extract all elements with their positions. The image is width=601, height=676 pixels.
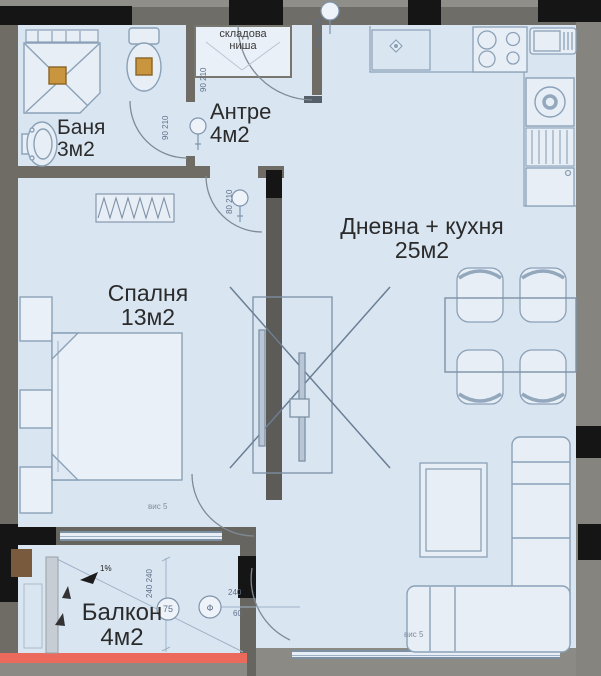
- column: [408, 0, 441, 25]
- room-name: Балкон: [82, 599, 162, 626]
- column: [18, 527, 56, 545]
- window-living: [292, 650, 560, 659]
- window-bedroom: [60, 531, 222, 541]
- balcony-railing: [0, 653, 247, 663]
- dim-door-entry: 100 210: [316, 19, 324, 48]
- entry-door-leaf: [304, 96, 322, 103]
- column-brown: [11, 549, 32, 577]
- column: [576, 426, 601, 458]
- room-area: 4м2: [70, 625, 174, 650]
- wall-bathroom-bottom: [18, 166, 210, 178]
- note-sofa: вис 5: [404, 631, 423, 639]
- room-area: 25м2: [312, 238, 532, 262]
- dim-60: 60: [233, 610, 242, 618]
- label-bathroom: Баня 3м2: [57, 117, 105, 161]
- column: [0, 6, 132, 25]
- floor-plan: 75 Ф Баня 3м2 Антре 4м2 Дневна + кухня 2…: [0, 0, 601, 676]
- room-area: 3м2: [57, 139, 105, 161]
- room-name: Дневна + кухня: [340, 213, 503, 239]
- column: [538, 0, 601, 22]
- room-area: 4м2: [210, 123, 271, 146]
- dim-niche: 90 210: [200, 68, 208, 92]
- note-bedroom: вис 5: [148, 503, 167, 511]
- column: [229, 0, 283, 25]
- wall-center: [266, 173, 282, 500]
- dim-door-bath: 90 210: [162, 116, 170, 140]
- label-bedroom: Спалня 13м2: [100, 281, 196, 329]
- label-living: Дневна + кухня 25м2: [312, 214, 532, 262]
- niche-line1: складова: [219, 28, 266, 40]
- column: [266, 170, 282, 198]
- room-area: 13м2: [100, 305, 196, 329]
- label-entry: Антре 4м2: [210, 100, 271, 146]
- wall-right: [576, 0, 601, 676]
- label-balcony: Балкон 4м2: [70, 600, 174, 650]
- dim-240: 240: [228, 589, 241, 597]
- wall-below-railing: [0, 663, 247, 676]
- column: [578, 524, 601, 560]
- slope-label: 1%: [100, 565, 112, 573]
- room-name: Антре: [210, 99, 271, 124]
- dim-door-bedroom: 80 210: [226, 190, 234, 214]
- room-name: Баня: [57, 116, 105, 139]
- niche-line2: ниша: [196, 41, 290, 53]
- dim-balcony: 240 240: [146, 569, 154, 598]
- wall-bathroom-right-bottom: [186, 156, 195, 178]
- label-storage-niche: складова ниша: [196, 29, 290, 52]
- room-name: Спалня: [108, 280, 188, 306]
